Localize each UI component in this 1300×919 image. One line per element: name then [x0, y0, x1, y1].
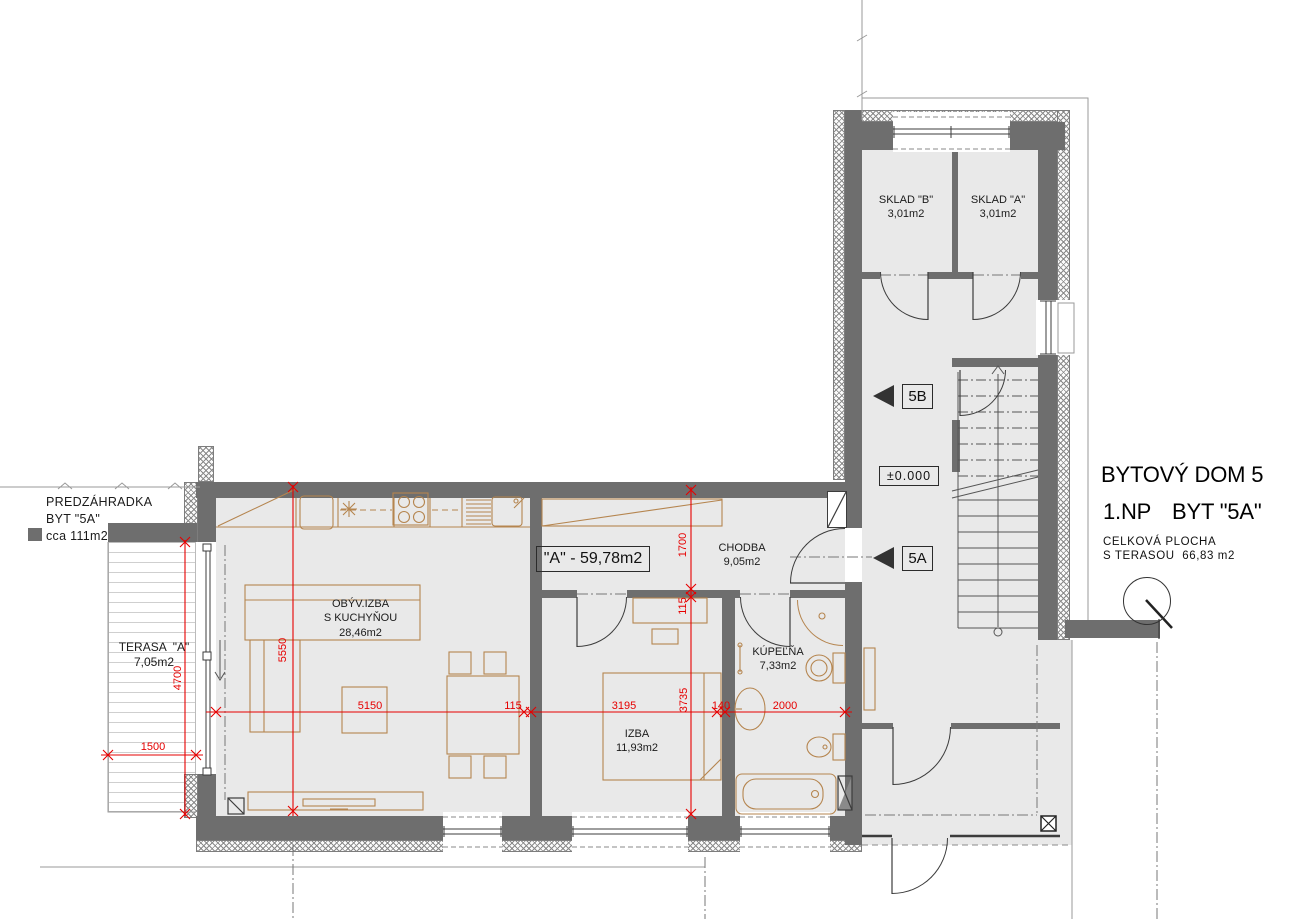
room-area-sklad-b: 3,01m2 [860, 207, 952, 221]
linework-layer [0, 0, 1300, 919]
fridge-icon [300, 496, 333, 529]
room-label-living: OBÝV.IZBA [298, 597, 423, 611]
slide-arrow [215, 640, 225, 680]
title-total-area-1: CELKOVÁ PLOCHA [1103, 536, 1216, 548]
entry-arrow-5a-icon [873, 547, 894, 569]
dim-115b: 115 [676, 591, 690, 621]
apartment-area-box: "A" - 59,78m2 [536, 546, 650, 572]
sliding-door [203, 544, 211, 775]
vestibule-cabinet-icon [864, 648, 875, 710]
floor-plan-canvas: 5B 5A ±0.000 "A" - 59,78m2 SKLAD "B" 3,0… [0, 0, 1300, 919]
corner-wardrobe-icon [218, 489, 296, 526]
room-area-kupelna: 7,33m2 [728, 659, 828, 673]
dim-115a: 115 [498, 699, 528, 713]
light-icon [341, 501, 357, 517]
unit-marker-5b: 5B [902, 384, 933, 409]
room-area-living: 28,46m2 [298, 626, 423, 640]
dim-3195: 3195 [604, 699, 644, 713]
dim-1700: 1700 [676, 525, 690, 565]
unit-marker-5a: 5A [902, 546, 933, 571]
title-unit: BYT "5A" [1172, 499, 1261, 525]
dish-rack-icon [466, 500, 491, 524]
title-floor: 1.NP [1103, 499, 1151, 525]
tv-cabinet-icon [248, 792, 423, 810]
dim-5550: 5550 [276, 630, 290, 670]
entry-arrow-5b-icon [873, 385, 894, 407]
chair-icon [652, 629, 678, 644]
room-label-terasa: TERASA "A" [104, 640, 204, 654]
title-total-area-2: S TERASOU 66,83 m2 [1103, 550, 1235, 562]
dim-3735: 3735 [677, 680, 691, 720]
room-label-living-2: S KUCHYŇOU [298, 611, 423, 625]
room-area-sklad-a: 3,01m2 [952, 207, 1044, 221]
room-area-izba: 11,93m2 [587, 741, 687, 755]
dining-table-icon [447, 676, 519, 754]
dim-4700: 4700 [171, 658, 185, 698]
detail-symbol-icon [1123, 577, 1171, 625]
dim-2000: 2000 [765, 699, 805, 713]
door-leaves [577, 272, 973, 894]
room-label-kupelna: KÚPEĽŇA [728, 645, 828, 659]
front-garden-line3: cca 111m2 [46, 528, 206, 545]
room-area-chodba: 9,05m2 [697, 555, 787, 569]
title-building: BYTOVÝ DOM 5 [1101, 462, 1263, 488]
room-area-terasa: 7,05m2 [104, 655, 204, 669]
level-marker: ±0.000 [879, 466, 939, 486]
front-garden-line2: BYT "5A" [46, 511, 206, 528]
dim-1500: 1500 [133, 740, 173, 754]
room-label-sklad-a: SKLAD "A" [952, 193, 1044, 207]
dim-140: 140 [706, 699, 736, 713]
dim-5150: 5150 [350, 699, 390, 713]
room-label-izba: IZBA [587, 727, 687, 741]
front-garden-line1: PREDZÁHRADKA [46, 494, 206, 511]
room-label-chodba: CHODBA [697, 541, 787, 555]
room-label-sklad-b: SKLAD "B" [860, 193, 952, 207]
site-lines [0, 0, 1088, 919]
